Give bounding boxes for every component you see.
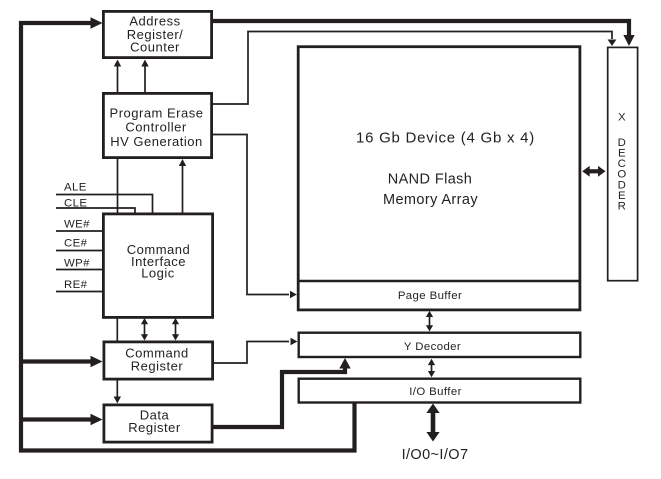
svg-text:AddressRegister/Counter: AddressRegister/Counter [127, 14, 184, 55]
svg-text:Y Decoder: Y Decoder [404, 341, 461, 353]
svg-text:I/O0~I/O7: I/O0~I/O7 [402, 447, 469, 463]
svg-text:CLE: CLE [64, 197, 87, 209]
svg-text:16 Gb Device (4 Gb x 4): 16 Gb Device (4 Gb x 4) [356, 130, 535, 147]
svg-text:WP#: WP# [64, 258, 90, 270]
svg-text:Page Buffer: Page Buffer [398, 290, 462, 302]
svg-text:CommandRegister: CommandRegister [125, 345, 188, 373]
svg-text:RE#: RE# [64, 279, 88, 291]
svg-text:ALE: ALE [64, 182, 87, 194]
svg-text:WE#: WE# [64, 219, 90, 231]
svg-text:I/O Buffer: I/O Buffer [409, 386, 462, 398]
svg-text:CE#: CE# [64, 238, 88, 250]
